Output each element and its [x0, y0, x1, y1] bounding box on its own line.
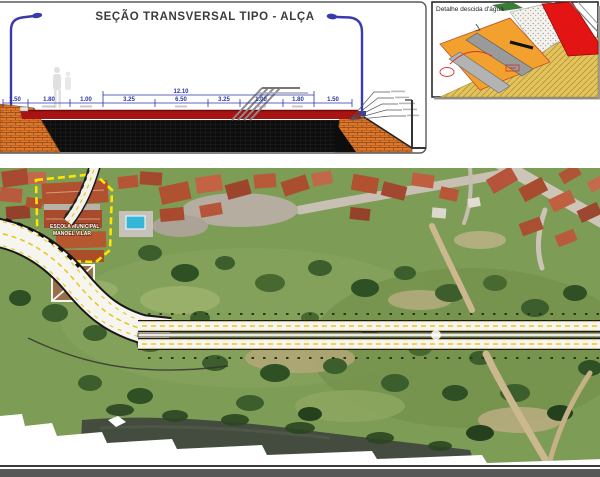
svg-text:MANOEL VILAR: MANOEL VILAR [53, 231, 91, 237]
drawing-sheet: SEÇÃO TRANSVERSAL TIPO - ALÇA [0, 0, 600, 477]
top-panels: SEÇÃO TRANSVERSAL TIPO - ALÇA [0, 0, 600, 168]
swimming-pool [119, 211, 153, 237]
dimension-label: 1.00 [80, 97, 92, 103]
aerial-orthophoto: ESCOLA MUNICIPAL MANOEL VILAR [0, 168, 600, 465]
dimension-label: 1.80 [43, 97, 55, 103]
dimension-label: 6.50 [175, 97, 187, 103]
dimension-label: 3.25 [218, 97, 230, 103]
detail-box: Detalhe descida d'água [432, 2, 600, 99]
detail-title: Detalhe descida d'água [436, 6, 504, 13]
svg-text:ESCOLA MUNICIPAL: ESCOLA MUNICIPAL [50, 224, 99, 230]
sheet-frame-band [0, 469, 600, 477]
dimension-label: 1.50 [327, 97, 339, 103]
dimension-label: 1.50 [9, 97, 21, 103]
cross-section-title: SEÇÃO TRANSVERSAL TIPO - ALÇA [95, 10, 314, 23]
dimension-label: 3.25 [123, 97, 135, 103]
dimension-label: 1.80 [292, 97, 304, 103]
dimension-label: 1.00 [255, 97, 267, 103]
pavement-section [0, 104, 412, 152]
total-width-label: 12.10 [173, 89, 189, 95]
